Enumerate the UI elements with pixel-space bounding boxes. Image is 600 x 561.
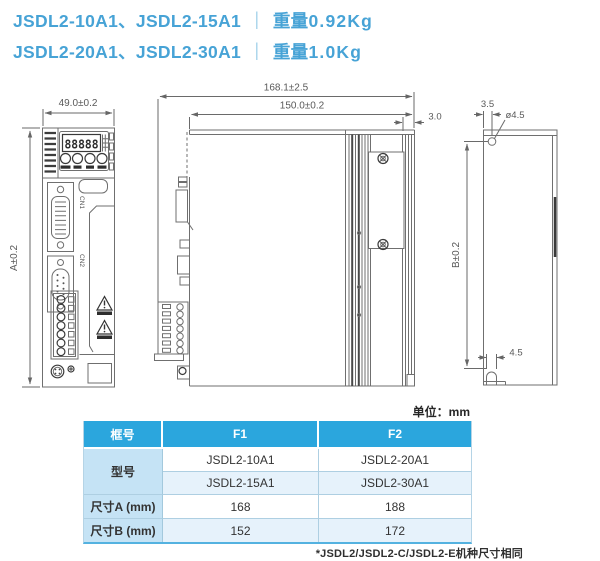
dimension-table: 框号 F1 F2 型号 JSDL2-10A1 JSDL2-20A1 JSDL2-… [83, 421, 472, 544]
footnote: *JSDL2/JSDL2-C/JSDL2-E机种尺寸相同 [200, 545, 523, 561]
table-dim-a-f1: 168 [163, 495, 319, 519]
table-dim-b-f1: 152 [163, 519, 319, 542]
mounting-plate [369, 152, 405, 250]
cn1-label: CN1 [78, 196, 85, 209]
back-hole-diameter-dim: ø4.5 [505, 110, 524, 121]
table-model-f1-row2: JSDL2-15A1 [163, 472, 319, 495]
table-model-label: 型号 [84, 449, 163, 495]
side-overall-depth-dim: 168.1±2.5 [264, 83, 309, 94]
table-dim-a-label: 尺寸A (mm) [84, 495, 163, 519]
mounting-notch [487, 372, 497, 385]
cn1-connector [48, 183, 74, 252]
cn2-label: CN2 [78, 254, 85, 267]
panel-buttons [61, 154, 108, 169]
table-dim-b-f2: 172 [319, 519, 471, 542]
table-dim-a-f2: 188 [319, 495, 471, 519]
side-view: 168.1±2.5 150.0±0.2 3.0 [155, 83, 442, 387]
back-hole-offset-dim: 3.5 [481, 99, 494, 110]
front-height-dim: A±0.2 [9, 245, 20, 271]
table-header-f2: F2 [319, 421, 471, 449]
terminal-block-profile [155, 302, 189, 361]
table-dim-b-label: 尺寸B (mm) [84, 519, 163, 542]
vent-slats-icon [45, 133, 57, 172]
seven-segment-display: 88888 [65, 138, 99, 152]
table-header-frame: 框号 [84, 421, 163, 449]
front-width-dim: 49.0±0.2 [59, 98, 98, 109]
terminal-block [51, 291, 78, 359]
side-body-depth-dim: 150.0±0.2 [280, 101, 325, 112]
units-label: 单位：mm [250, 403, 470, 420]
front-view: 49.0±0.2 A±0.2 88888 [9, 98, 115, 387]
table-model-f2-row2: JSDL2-30A1 [319, 472, 471, 495]
back-view: 3.5 ø4.5 B±0.2 4.5 [451, 99, 557, 385]
back-height-dim: B±0.2 [451, 242, 462, 268]
battery-slot [79, 180, 108, 194]
back-notch-width-dim: 4.5 [509, 348, 522, 359]
mounting-hole [488, 138, 496, 146]
ground-screw-icon [68, 366, 74, 372]
dimension-drawing: 49.0±0.2 A±0.2 88888 [0, 0, 600, 410]
table-model-f1-row1: JSDL2-10A1 [163, 449, 319, 472]
warning-triangle-icon [97, 321, 112, 340]
table-header-f1: F1 [163, 421, 319, 449]
side-fin-depth-dim: 3.0 [428, 112, 441, 123]
encoder-connector [51, 365, 64, 378]
caution-triangle-icon [97, 297, 112, 316]
nameplate-box [88, 364, 112, 384]
table-model-f2-row1: JSDL2-20A1 [319, 449, 471, 472]
